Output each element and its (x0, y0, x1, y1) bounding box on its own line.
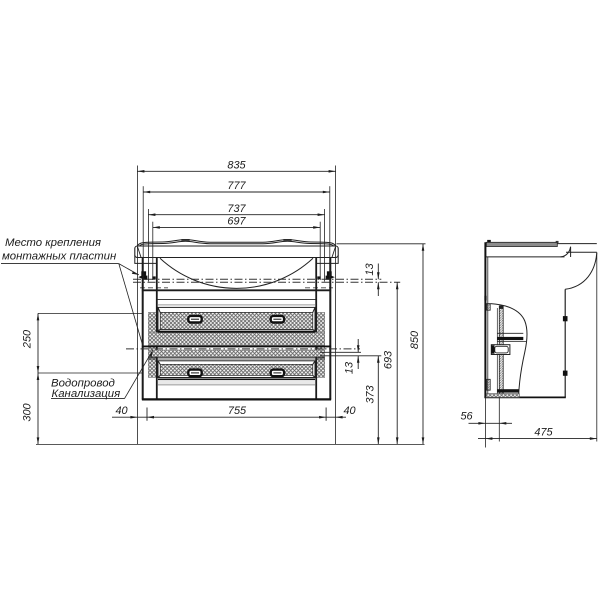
svg-text:Канализация: Канализация (52, 388, 121, 400)
svg-text:850: 850 (409, 331, 421, 349)
svg-text:697: 697 (227, 216, 246, 228)
svg-text:Место крепления: Место крепления (5, 237, 101, 249)
svg-text:монтажных пластин: монтажных пластин (2, 251, 117, 263)
svg-text:13: 13 (364, 263, 376, 275)
svg-text:40: 40 (115, 405, 127, 417)
svg-text:373: 373 (364, 385, 376, 403)
svg-text:40: 40 (343, 405, 355, 417)
svg-text:737: 737 (227, 203, 246, 215)
svg-text:250: 250 (22, 330, 34, 349)
svg-text:300: 300 (22, 403, 34, 421)
svg-text:777: 777 (227, 180, 246, 192)
svg-text:755: 755 (228, 405, 247, 417)
svg-text:56: 56 (460, 411, 473, 423)
svg-text:835: 835 (227, 159, 246, 171)
svg-text:693: 693 (383, 351, 395, 369)
svg-text:475: 475 (534, 426, 553, 438)
svg-text:13: 13 (344, 362, 356, 374)
